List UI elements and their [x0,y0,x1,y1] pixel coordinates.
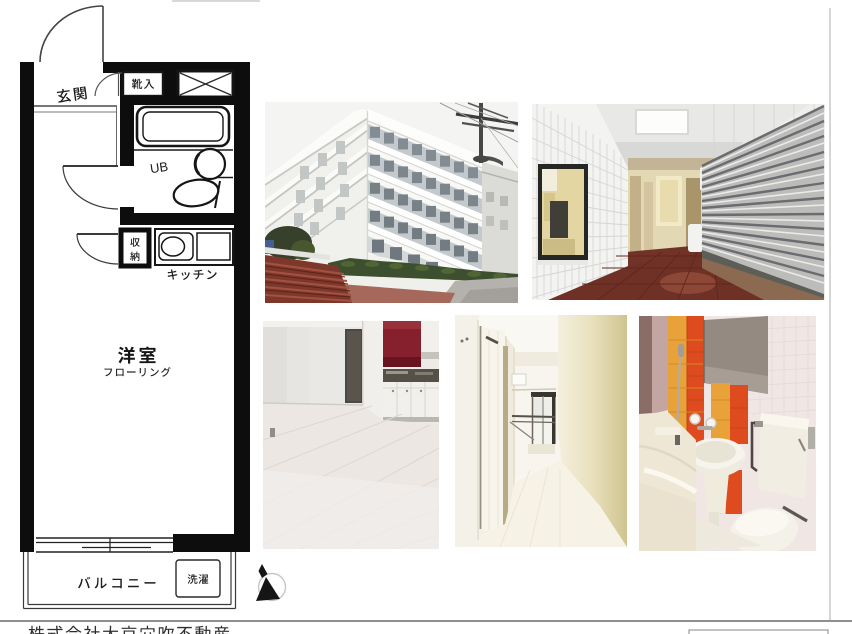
svg-text:UB: UB [149,159,169,176]
